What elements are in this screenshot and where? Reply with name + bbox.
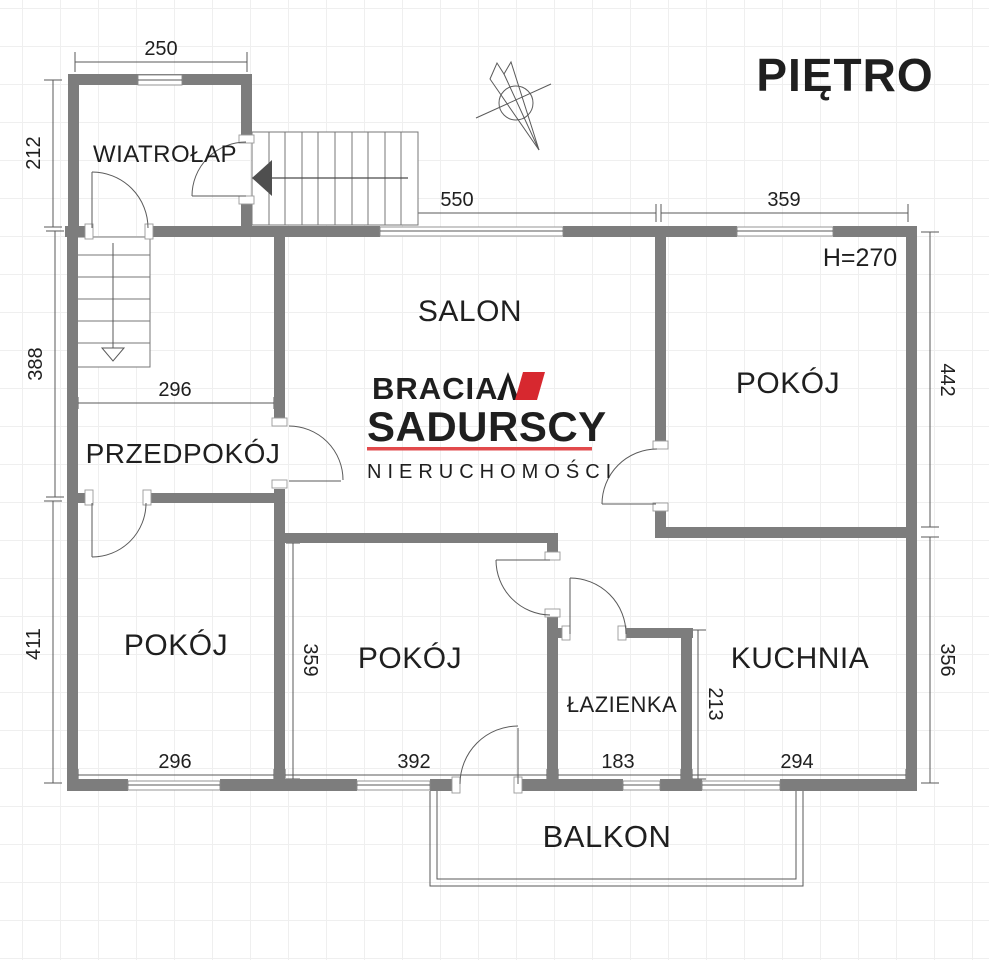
dim-wiatrolap-width: 250 [144,38,177,60]
dim-pokoj-left-width: 296 [158,751,191,773]
room-label-pokoj-right: POKÓJ [736,367,840,400]
north-arrow-icon [476,62,551,150]
room-label-salon: SALON [418,295,522,328]
room-label-kuchnia: KUCHNIA [731,642,870,675]
ceiling-height-label: H=270 [823,244,897,272]
room-label-pokoj-left: POKÓJ [124,629,228,662]
door-pokoj-middle [496,560,550,615]
dim-kuchnia-width: 294 [780,751,813,773]
dim-przedpokoj-height: 388 [25,347,47,380]
window-lazienka [623,781,660,790]
room-label-przedpokoj: PRZEDPOKÓJ [86,438,281,469]
floor-plan: PIĘTRO H=270 WIATROŁAP SALON PRZEDPOKÓJ … [0,0,989,960]
window-pokoj-left [128,781,220,790]
logo-line2: SADURSCY [367,403,607,450]
dim-wiatrolap-height: 212 [23,136,45,169]
dim-kuchnia-height: 356 [936,643,958,676]
page-title: PIĘTRO [756,49,933,101]
stairs-lower [76,237,150,367]
dim-pokoj-middle-height: 359 [299,643,321,676]
window-wiatrolap [138,75,182,85]
window-salon [380,227,563,236]
door-przedpokoj-salon [289,426,343,481]
logo-line3: NIERUCHOMOŚCI [367,459,617,483]
window-kuchnia [702,781,780,790]
dim-salon-width: 550 [440,189,473,211]
room-label-lazienka: ŁAZIENKA [567,692,677,717]
window-pokoj-middle [357,781,430,790]
dim-lazienka-width: 183 [601,751,634,773]
dim-pokoj-right-width: 359 [767,189,800,211]
agency-logo: BRACIA SADURSCY NIERUCHOMOŚCI [367,371,617,483]
door-pokoj-left [92,503,146,557]
logo-red-line [367,447,592,451]
dim-pokoj-middle-width: 392 [397,751,430,773]
dim-pokoj-left-height: 411 [23,628,45,660]
logo-red-slash-icon [515,372,545,400]
room-label-pokoj-middle: POKÓJ [358,642,462,675]
window-pokoj-right [737,227,833,236]
room-label-balkon: BALKON [543,819,672,854]
room-label-wiatrolap: WIATROŁAP [93,141,237,168]
logo-caret-icon [497,372,519,400]
dim-przedpokoj-width: 296 [158,379,191,401]
logo-line1: BRACIA [372,371,499,406]
stairs-upper [252,132,418,225]
dim-lazienka-wall: 213 [704,687,726,720]
dim-pokoj-right-height: 442 [936,363,958,396]
door-wiatrolap-entry [92,172,148,228]
